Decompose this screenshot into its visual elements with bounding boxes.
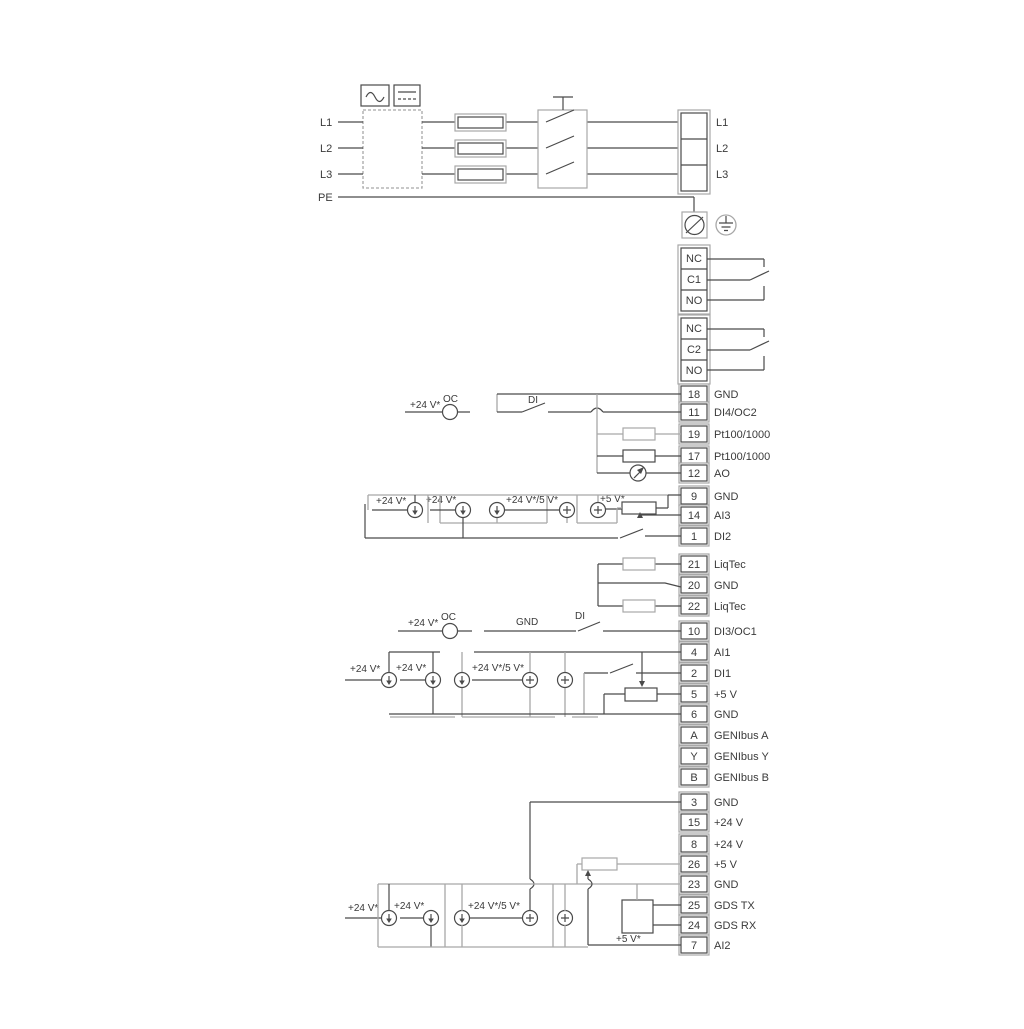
- svg-text:15: 15: [688, 817, 700, 829]
- ac-icon: [361, 85, 389, 106]
- terminal-25: 25GDS TX: [679, 895, 755, 915]
- terminal-11: 11DI4/OC2: [679, 402, 757, 422]
- gds-ai2-section: +5 V* +24 V* +24 V* +24 V*/5 V*: [345, 802, 681, 947]
- svg-text:AI2: AI2: [714, 940, 731, 952]
- liqtec-resistor-1: [623, 558, 655, 570]
- terminal-12: 12AO: [679, 463, 730, 483]
- svg-text:GND: GND: [714, 389, 739, 401]
- svg-text:19: 19: [688, 429, 700, 441]
- line-l2-label: L2: [320, 143, 332, 155]
- voltage-source-icon: [523, 673, 538, 688]
- di3-oc1-section: +24 V* OC GND DI: [398, 611, 681, 639]
- svg-text:5: 5: [691, 689, 697, 701]
- svg-text:GENIbus B: GENIbus B: [714, 772, 769, 784]
- terminal-6: 6GND: [679, 704, 739, 724]
- terminal-19: 19Pt100/1000: [679, 424, 770, 444]
- terminal-24: 24GDS RX: [679, 915, 757, 935]
- v5-label-2: +5 V*: [616, 934, 641, 945]
- terminal-B: BGENIbus B: [679, 767, 769, 787]
- svg-text:Y: Y: [690, 751, 698, 763]
- terminal-2: 2DI1: [679, 663, 731, 683]
- svg-text:23: 23: [688, 879, 700, 891]
- svg-text:GND: GND: [714, 797, 739, 809]
- svg-text:LiqTec: LiqTec: [714, 559, 746, 571]
- svg-text:GDS RX: GDS RX: [714, 920, 757, 932]
- terminal-22: 22LiqTec: [679, 596, 746, 616]
- line-l1-label: L1: [320, 117, 332, 129]
- gnd-label-1: GND: [516, 617, 538, 628]
- current-sink-icon: [455, 911, 470, 926]
- relay1-c1: C1: [687, 274, 701, 286]
- svg-text:DI4/OC2: DI4/OC2: [714, 407, 757, 419]
- di-label-2: DI: [575, 611, 585, 622]
- current-sink-icon: [408, 503, 423, 518]
- terminal-15: 15+24 V: [679, 812, 744, 832]
- svg-text:Pt100/1000: Pt100/1000: [714, 451, 770, 463]
- line-pe-label: PE: [318, 192, 333, 204]
- potentiometer-ai1: [604, 652, 681, 714]
- svg-text:+5 V: +5 V: [714, 689, 738, 701]
- voltage-source-icon: [560, 503, 575, 518]
- di1-switch: [584, 664, 681, 673]
- fuse: [455, 114, 506, 183]
- svg-text:GND: GND: [714, 709, 739, 721]
- v24-label-7: +24 V*: [348, 903, 378, 914]
- svg-text:20: 20: [688, 580, 700, 592]
- svg-text:10: 10: [688, 626, 700, 638]
- svg-text:Pt100/1000: Pt100/1000: [714, 429, 770, 441]
- svg-text:4: 4: [691, 647, 697, 659]
- svg-text:DI2: DI2: [714, 531, 731, 543]
- v24-label-1: +24 V*: [410, 400, 440, 411]
- v24-label-6: +24 V*: [396, 663, 426, 674]
- power-output-block: L1 L2 L3: [678, 110, 728, 194]
- svg-text:GND: GND: [714, 580, 739, 592]
- svg-text:18: 18: [688, 389, 700, 401]
- io-terminal-column: 18GND 11DI4/OC2 19Pt100/1000 17Pt100/100…: [679, 384, 770, 955]
- svg-text:9: 9: [691, 491, 697, 503]
- voltage-source-icon: [558, 673, 573, 688]
- oc-label-1: OC: [443, 394, 458, 405]
- terminal-9: 9GND: [679, 486, 739, 506]
- terminal-Y: YGENIbus Y: [679, 746, 769, 766]
- svg-text:AI3: AI3: [714, 510, 731, 522]
- relay-2: NC C2 NO: [678, 315, 769, 384]
- current-sink-icon: [426, 673, 441, 688]
- terminal-26: 26+5 V: [679, 854, 738, 874]
- svg-text:+5 V: +5 V: [714, 859, 738, 871]
- relay2-contact: [707, 329, 769, 370]
- svg-text:22: 22: [688, 601, 700, 613]
- analog-output-meter-icon: [597, 465, 681, 481]
- svg-text:3: 3: [691, 797, 697, 809]
- filter-box: [363, 110, 422, 188]
- relay2-no: NO: [686, 365, 703, 377]
- relay1-contact: [707, 259, 769, 300]
- gds-sensor-box: +5 V*: [616, 884, 681, 945]
- power-input-section: L1 L2 L3 PE: [318, 85, 736, 238]
- wiring-diagram: L1 L2 L3 PE: [0, 0, 1024, 1024]
- svg-text:14: 14: [688, 510, 700, 522]
- current-sink-icon: [424, 911, 439, 926]
- current-sink-icon: [455, 673, 470, 688]
- v24-label-3: +24 V*: [426, 495, 456, 506]
- terminal-7: 7AI2: [679, 935, 731, 955]
- svg-text:A: A: [690, 730, 698, 742]
- out-l1-label: L1: [716, 117, 728, 129]
- terminal-14: 14AI3: [679, 505, 731, 525]
- terminal-10: 10DI3/OC1: [679, 621, 757, 641]
- v24-label-8: +24 V*: [394, 901, 424, 912]
- open-collector-icon: [443, 624, 458, 639]
- terminal-23: 23GND: [679, 874, 739, 894]
- v24-label-5: +24 V*: [350, 664, 380, 675]
- svg-text:GND: GND: [714, 879, 739, 891]
- terminal-20: 20GND: [679, 575, 739, 595]
- current-sink-icon: [456, 503, 471, 518]
- potentiometer-ai3: [617, 495, 681, 523]
- voltage-source-icon: [591, 503, 606, 518]
- di4-oc2-section: +24 V* OC DI: [405, 394, 681, 481]
- svg-text:26: 26: [688, 859, 700, 871]
- current-sink-icon: [382, 911, 397, 926]
- oc-label-2: OC: [441, 612, 456, 623]
- terminal-4: 4AI1: [679, 642, 731, 662]
- svg-text:GENIbus A: GENIbus A: [714, 730, 769, 742]
- svg-text:24: 24: [688, 920, 700, 932]
- power-wires: [338, 122, 694, 212]
- di-label-1: DI: [528, 395, 538, 406]
- current-sink-icon: [382, 673, 397, 688]
- earth-icon: [716, 215, 736, 235]
- svg-text:+24 V: +24 V: [714, 817, 744, 829]
- svg-text:AO: AO: [714, 468, 730, 480]
- svg-text:DI3/OC1: DI3/OC1: [714, 626, 757, 638]
- svg-text:GDS TX: GDS TX: [714, 900, 755, 912]
- svg-text:GENIbus Y: GENIbus Y: [714, 751, 769, 763]
- svg-text:+24 V: +24 V: [714, 839, 744, 851]
- open-collector-icon: [443, 405, 458, 420]
- terminal-5: 5+5 V: [679, 684, 738, 704]
- voltage-source-icon: [523, 911, 538, 926]
- svg-text:GND: GND: [714, 491, 739, 503]
- svg-text:DI1: DI1: [714, 668, 731, 680]
- relay1-no: NO: [686, 295, 703, 307]
- pt100-resistor-1: [597, 428, 681, 440]
- pe-screw-terminal: [682, 212, 707, 238]
- svg-text:2: 2: [691, 668, 697, 680]
- dc-icon: [394, 85, 420, 106]
- terminal-A: AGENIbus A: [679, 725, 769, 745]
- svg-text:1: 1: [691, 531, 697, 543]
- svg-text:21: 21: [688, 559, 700, 571]
- v24-label-2: +24 V*: [376, 496, 406, 507]
- svg-text:12: 12: [688, 468, 700, 480]
- voltage-source-icon: [558, 911, 573, 926]
- relay2-nc: NC: [686, 323, 702, 335]
- ai3-di2-section: +24 V* +24 V* +24 V*/5 V* +5 V*: [365, 494, 681, 538]
- svg-text:7: 7: [691, 940, 697, 952]
- liqtec-section: [598, 558, 681, 612]
- liqtec-resistor-2: [623, 600, 655, 612]
- v24or5-label-1: +24 V*/5 V*: [506, 495, 558, 506]
- terminal-1: 1DI2: [679, 526, 731, 546]
- svg-text:11: 11: [688, 407, 699, 419]
- svg-text:25: 25: [688, 900, 700, 912]
- svg-text:17: 17: [688, 451, 700, 463]
- svg-text:8: 8: [691, 839, 697, 851]
- terminal-21: 21LiqTec: [679, 554, 746, 574]
- pt100-resistor-2: [597, 450, 681, 462]
- out-l3-label: L3: [716, 169, 728, 181]
- v24-label-4: +24 V*: [408, 618, 438, 629]
- terminal-8: 8+24 V: [679, 834, 744, 854]
- v24or5-label-3: +24 V*/5 V*: [468, 901, 520, 912]
- current-sink-icon: [490, 503, 505, 518]
- terminal-3: 3GND: [679, 792, 739, 812]
- relay-1: NC C1 NO: [678, 245, 769, 314]
- line-l3-label: L3: [320, 169, 332, 181]
- svg-text:AI1: AI1: [714, 647, 731, 659]
- svg-text:6: 6: [691, 709, 697, 721]
- relay1-nc: NC: [686, 253, 702, 265]
- ai1-di1-section: +24 V* +24 V* +24 V*/5 V*: [345, 652, 681, 717]
- svg-text:B: B: [690, 772, 697, 784]
- main-switch: [538, 97, 587, 188]
- svg-text:LiqTec: LiqTec: [714, 601, 746, 613]
- out-l2-label: L2: [716, 143, 728, 155]
- relay2-c2: C2: [687, 344, 701, 356]
- terminal-18: 18GND: [679, 384, 739, 404]
- v24or5-label-2: +24 V*/5 V*: [472, 663, 524, 674]
